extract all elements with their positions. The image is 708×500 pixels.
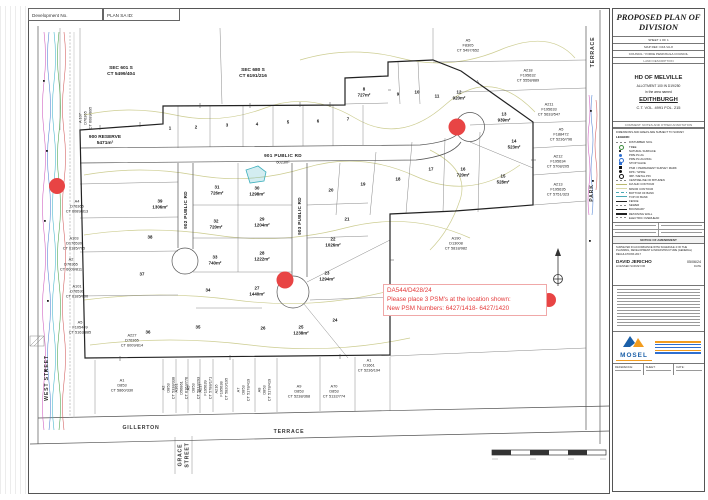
parcel-label: A211 F195633 CT 5633/547 — [538, 103, 560, 118]
footer-strip: REFERENCE: SHEET: DATE: — [613, 364, 704, 375]
lot-label: 14 523m² — [508, 139, 521, 150]
parcel-a107-label: A 107 D76365 CT 6089/895 — [79, 107, 94, 129]
certification-text: SURVEYED IN ACCORDANCE WITH SCHEDULE 4 O… — [616, 246, 701, 256]
psm-marker-north — [449, 119, 466, 136]
reserve-900-label: 900 RESERVE 5471m² — [89, 135, 121, 147]
table-cell — [613, 223, 659, 229]
street-park-terrace: TERRACE — [590, 37, 597, 68]
hundred-label: HD OF MELVILLE — [635, 75, 683, 81]
pipe-plug-ring-swatch-icon — [616, 158, 627, 161]
scale-bar — [492, 450, 606, 459]
hatch-detail-box — [30, 336, 44, 346]
mosel-contact-block — [655, 340, 701, 356]
lot-label: 26 — [261, 325, 266, 331]
sewer-swatch-icon — [616, 204, 627, 207]
fence-swatch-icon — [616, 200, 627, 203]
electric-overhead-swatch-icon — [616, 216, 627, 219]
psm-marker-central — [277, 272, 294, 289]
parcel-label: A2 D76365 CT 6009/811 — [60, 258, 82, 273]
lot-label: 1 — [169, 125, 171, 131]
street-park: PARK — [589, 184, 596, 202]
psm-annotation-box: DA544/D428/24 Please place 3 PSM's at th… — [383, 284, 547, 316]
parcel-label: A101 D76530 CT 6185/700 — [66, 285, 88, 300]
lot-label: 38 — [148, 234, 153, 240]
parcel-label: A9 D853 CT 5238/368 — [288, 385, 310, 400]
street-terrace: TERRACE — [274, 429, 305, 436]
certification-panel: SURVEYED IN ACCORDANCE WITH SCHEDULE 4 O… — [613, 244, 704, 286]
title-block: PROPOSED PLAN OF DIVISION SHEET 1 OF 1 M… — [612, 8, 705, 492]
mosel-wordmark: MOSEL — [616, 353, 652, 359]
date-label: DATE — [694, 265, 701, 268]
parcel-label: A190 D13008 CT 5818/982 — [445, 237, 467, 252]
map-ref-row: MAP REF: D43-VA-8 — [613, 44, 704, 51]
lot-label: 35 — [196, 324, 201, 330]
parcel-label: A5 F188472 CT 5236/796 — [550, 128, 572, 143]
section-601-label: SEC 601 S CT 5499/404 — [107, 66, 135, 78]
surveyor-name: DAVID JERICHO — [616, 259, 652, 264]
locality-label: EDITHBURGH — [639, 97, 678, 103]
table-row — [613, 223, 704, 230]
land-description-box: HD OF MELVILLE ALLOTMENT 100 IN D19/250 … — [613, 64, 704, 122]
lot-label: 36 — [146, 329, 151, 335]
street-gillerton: GILLERTON — [122, 425, 159, 432]
lot-label: 20 — [329, 187, 334, 193]
dpk-spike-swatch-icon — [616, 170, 627, 173]
annotation-line-1: DA544/D428/24 — [387, 287, 543, 296]
parcel-label: A217 F195639 CT 5788/171 — [199, 377, 214, 399]
lot-label: 12 920m² — [453, 90, 466, 101]
centreline-swatch-icon — [616, 179, 627, 182]
lot-label: 27 1440m² — [249, 286, 264, 297]
lot-label: 18 — [396, 176, 401, 182]
major-contour-swatch-icon — [616, 183, 627, 186]
road-901-label: 901 PUBLIC RD — [264, 153, 302, 159]
parcel-label: A218 F195632 CT 5558/889 — [517, 69, 539, 84]
boundary-swatch-icon — [616, 208, 627, 211]
road-902-label: 902 PUBLIC RD — [183, 191, 189, 229]
table-cell — [659, 230, 704, 236]
amendment-header: NOTICE OF AMENDMENT — [613, 237, 704, 244]
lot-label: 16 720m² — [457, 167, 470, 178]
lot-label: 17 — [429, 166, 434, 172]
lot-label: 31 726m² — [211, 185, 224, 196]
tree-swatch-icon — [616, 145, 627, 148]
legend-text: ELECTRIC OVERHEAD — [629, 216, 659, 220]
natural-surface-swatch-icon — [616, 149, 627, 152]
lot-label: 8 727m² — [358, 87, 371, 98]
parcel-label: A212 F195634 CT 5708/205 — [547, 155, 569, 170]
ct-reference-label: C.T. VOL. 4991 FOL. 215 — [637, 105, 681, 110]
annotation-line-3: New PSM Numbers: 6427/1418- 6427/1420 — [387, 305, 543, 314]
metal-pin-swatch-icon — [616, 174, 627, 177]
lot-label: 19 — [361, 181, 366, 187]
legend-item: ELECTRIC OVERHEAD — [616, 216, 701, 220]
council-row: COUNCIL: YORKE PENINSULA COUNCIL — [613, 51, 704, 58]
psm-marker-west — [49, 178, 65, 194]
street-west: WEST STREET — [44, 355, 51, 401]
parcel-label: A227 D76365 CT 6009/814 — [121, 334, 143, 349]
lot-label: 3 — [226, 122, 228, 128]
disturbed-soil-swatch-icon — [616, 141, 627, 144]
retaining-wall-swatch-icon — [616, 212, 627, 215]
parcel-label: A1 D1661 CT 5236/194 — [358, 359, 380, 374]
lot-label: 34 — [206, 287, 211, 293]
psm-swatch-icon — [616, 166, 627, 169]
development-no-field: Development No. — [28, 8, 103, 21]
lot-label: 28 1222m² — [254, 251, 269, 262]
lot-label: 32 720m² — [210, 219, 223, 230]
lot-label: 29 1204m² — [254, 217, 269, 228]
lot-label: 11 — [435, 93, 440, 99]
area-named-label: in the area named — [645, 90, 672, 94]
bottom-of-bank-swatch-icon — [616, 191, 627, 194]
road-903-label: 903 PUBLIC RD — [297, 197, 303, 235]
table-row — [613, 230, 704, 236]
survey-record-table — [613, 223, 704, 237]
lot-label: 22 1026m² — [325, 237, 340, 248]
lot-label: 21 — [345, 216, 350, 222]
lot-label: 7 — [347, 116, 349, 122]
plan-sheet: Development No. PLAN SA ID: SEC 601 S CT… — [0, 0, 708, 500]
mosel-underline — [616, 360, 652, 362]
surveyor-logo-panel: MOSEL — [613, 332, 704, 364]
lot-label: 4 — [256, 121, 258, 127]
fine-print-block — [617, 289, 700, 328]
lot-label: 23 1294m² — [319, 271, 334, 282]
table-cell — [613, 230, 659, 236]
lot-label: 37 — [140, 271, 145, 277]
parcel-lines — [60, 28, 586, 474]
parcel-label: A213 F195635 CT 5751/323 — [547, 183, 569, 198]
minor-contour-swatch-icon — [616, 187, 627, 190]
footer-sheet-cell: SHEET: — [644, 364, 675, 375]
lot-label: 2 — [195, 124, 197, 130]
plan-sa-id-field: PLAN SA ID: — [103, 8, 180, 21]
table-cell — [659, 223, 704, 229]
legend-panel: DIMENSIONS AND AREAS ARE SUBJECT TO SURV… — [613, 129, 704, 223]
parcel-label: A5 F105449 CT 5163/885 — [69, 321, 91, 336]
parcel-label: A4 D76365 CT 6089/813 — [66, 200, 88, 215]
annotation-line-2: Please place 3 PSM's at the location sho… — [387, 296, 543, 305]
footer-date-cell: DATE: — [674, 364, 704, 375]
parcel-label: A5 F8305 CT 5497/652 — [457, 39, 479, 54]
stop-valve-swatch-icon — [616, 162, 627, 165]
sheet-title: PROPOSED PLAN OF DIVISION — [613, 9, 704, 37]
legend-heading: LEGEND: — [616, 135, 701, 139]
parcel-label: A70 D853 CT 5132/774 — [323, 385, 345, 400]
parcel-label: A1 D853 CT 5860/330 — [111, 379, 133, 394]
lot-label: 25 1238m² — [293, 325, 308, 336]
parcel-label: A7 D853 CT 5178/419 — [237, 379, 252, 401]
lot-label: 33 740m² — [209, 255, 222, 266]
lot-label: 30 1298m² — [249, 186, 264, 197]
lot-label: 15 528m² — [497, 174, 510, 185]
lot-label: 13 939m² — [498, 112, 511, 123]
road-901-area: 6023m² — [276, 161, 289, 166]
survey-date: 05/06/24 — [687, 260, 701, 264]
subject-to-survey-note: DIMENSIONS AND AREAS ARE SUBJECT TO SURV… — [616, 131, 701, 134]
north-arrow-head — [555, 248, 561, 256]
fine-print-panel — [613, 286, 704, 332]
lot-label: 6 — [317, 118, 319, 124]
footer-reference-cell: REFERENCE: — [613, 364, 644, 375]
street-grace: GRACE STREET — [178, 442, 191, 467]
section-680-label: SEC 680 S CT 6191/216 — [239, 68, 267, 80]
mosel-logo-icon — [621, 334, 647, 348]
lot-label: 10 — [415, 89, 420, 95]
top-of-bank-swatch-icon — [616, 195, 627, 198]
pipe-plug-swatch-icon — [616, 154, 627, 157]
parcel-label: A103 D176530 CT 6185/705 — [63, 237, 85, 252]
water-feature-polygon — [246, 166, 266, 183]
lot-label: 5 — [287, 119, 289, 125]
lot-label: 24 — [333, 317, 338, 323]
parcel-label: A216 F195638 CT 5820/195 — [215, 378, 230, 400]
lot-label: 39 1306m² — [152, 199, 167, 210]
surveyor-title: LICENSED SURVEYOR — [616, 265, 645, 268]
lot-label: 9 — [397, 91, 399, 97]
sheet-number-row: SHEET 1 OF 1 — [613, 37, 704, 44]
allotment-label: ALLOTMENT 100 IN D19/250 — [637, 84, 681, 88]
parcel-label: A8 D853 CT 5178/419 — [258, 379, 273, 401]
